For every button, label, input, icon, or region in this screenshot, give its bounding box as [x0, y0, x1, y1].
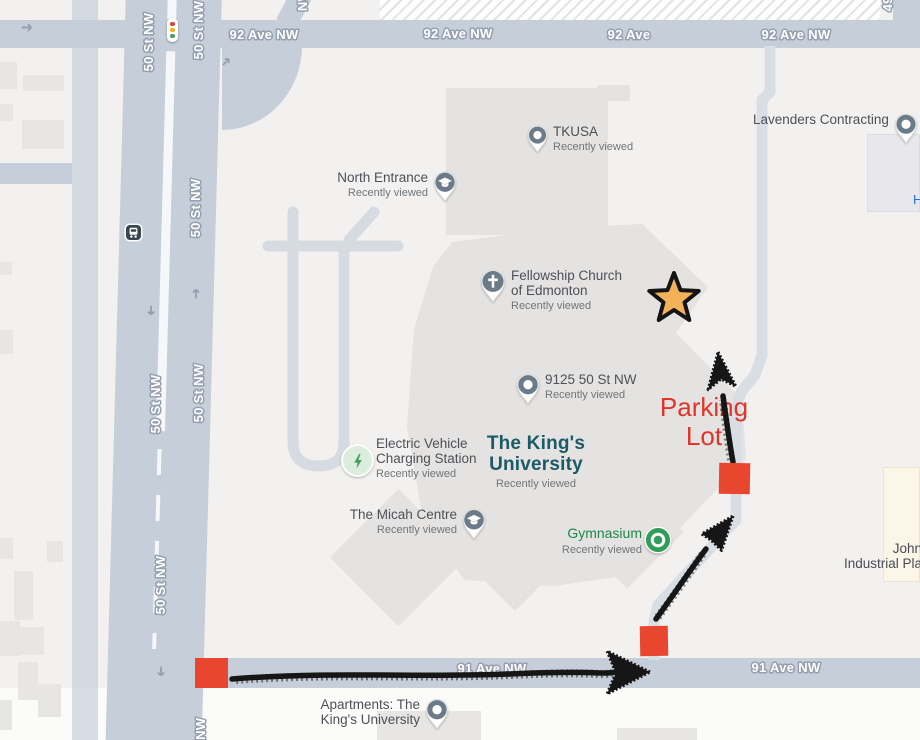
building-footprint — [18, 662, 38, 700]
building-footprint — [0, 104, 13, 121]
poi-name[interactable]: Lavenders Contracting — [753, 112, 889, 127]
traffic-direction-arrow — [143, 303, 159, 319]
route-arrowhead-diagonal — [702, 516, 733, 550]
poi-ev-charging-station[interactable]: Electric Vehicle Charging Station Recent… — [343, 436, 488, 480]
poi-status: Recently viewed — [553, 141, 633, 153]
poi-name[interactable]: Fellowship Church of Edmonton — [511, 268, 629, 298]
place-pin-icon[interactable] — [893, 112, 919, 144]
building-footprint — [0, 621, 20, 656]
poi-status: Recently viewed — [562, 544, 642, 556]
place-pin-icon[interactable] — [424, 697, 450, 730]
building-footprint — [597, 85, 630, 101]
building-footprint — [0, 62, 17, 89]
poi-status: Recently viewed — [545, 389, 637, 401]
traffic-light-icon — [167, 18, 178, 42]
gymnasium-dot-icon[interactable] — [646, 528, 670, 552]
poi-status: Recently viewed — [376, 468, 488, 480]
poi-name[interactable]: TKUSA — [553, 124, 633, 139]
poi-name[interactable]: The Micah Centre — [350, 507, 457, 522]
poi-name[interactable]: Electric Vehicle Charging Station — [376, 436, 488, 466]
place-pin-icon[interactable] — [515, 372, 541, 405]
traffic-direction-arrow — [19, 19, 36, 36]
poi-status: Recently viewed — [496, 478, 576, 490]
route-marker-square-mid — [640, 626, 669, 656]
poi-name-line1: John — [893, 541, 920, 556]
road-side-street — [0, 163, 72, 184]
traffic-direction-arrow — [188, 285, 204, 301]
school-pin-icon[interactable] — [432, 170, 458, 202]
traffic-direction-arrow — [153, 664, 169, 680]
campus-building-north — [446, 88, 608, 235]
building-footprint — [20, 627, 44, 655]
star-annotation — [649, 273, 698, 320]
poi-name[interactable]: 9125 50 St NW — [545, 372, 637, 387]
place-pin-icon[interactable] — [526, 124, 549, 153]
building-footprint — [0, 262, 12, 275]
building-footprint — [23, 75, 64, 91]
poi-status: Recently viewed — [348, 187, 428, 199]
poi-kings-university[interactable]: The King's University Recently viewed — [486, 433, 586, 490]
building-footprint — [22, 120, 64, 149]
school-pin-icon[interactable] — [461, 507, 487, 540]
restricted-area-hatching — [380, 0, 880, 22]
church-pin-icon[interactable] — [479, 268, 507, 303]
route-marker-square-start — [195, 658, 228, 688]
poi-name[interactable]: Apartments: The King's University — [300, 697, 420, 727]
poi-fellowship-church[interactable]: Fellowship Church of Edmonton Recently v… — [479, 268, 629, 312]
poi-micah-centre[interactable]: The Micah Centre Recently viewed — [342, 507, 487, 540]
poi-name[interactable]: The King's University — [486, 433, 586, 476]
poi-status: Recently viewed — [511, 300, 629, 312]
poi-lavenders-contracting[interactable]: Lavenders Contracting — [753, 112, 919, 144]
route-arrow-texture — [658, 552, 704, 617]
building-footprint — [14, 571, 33, 620]
building-footprint — [617, 728, 697, 740]
campus-loop-driveway — [268, 212, 398, 466]
poi-status: Recently viewed — [377, 524, 457, 536]
parking-lot-annotation: Parking Lot — [652, 393, 756, 450]
poi-john-industrial[interactable]: John Industrial Pla — [838, 541, 920, 572]
poi-name-line2: Industrial Pla — [844, 556, 920, 571]
poi-partial-blue-label[interactable]: H — [913, 192, 920, 207]
route-arrowhead-north — [708, 352, 736, 390]
road-alley — [72, 0, 98, 740]
poi-name[interactable]: North Entrance — [337, 170, 428, 185]
bus-stop-icon[interactable] — [126, 225, 141, 240]
building-footprint — [47, 541, 63, 562]
ev-charging-icon[interactable] — [343, 446, 372, 475]
road-50-st — [105, 0, 222, 740]
building-footprint — [0, 538, 13, 559]
building-footprint — [0, 700, 12, 730]
building-footprint — [38, 684, 61, 717]
map-canvas[interactable]: 92 Ave NW 92 Ave NW 92 Ave 92 Ave NW 50 … — [0, 0, 920, 740]
road-49-st-stub — [893, 0, 920, 24]
poi-apartments-kings[interactable]: Apartments: The King's University — [300, 697, 450, 730]
route-marker-square-end — [719, 463, 751, 495]
road-91-ave — [150, 658, 920, 688]
poi-9125-50-st[interactable]: 9125 50 St NW Recently viewed — [515, 372, 637, 405]
poi-north-entrance[interactable]: North Entrance Recently viewed — [325, 170, 458, 202]
poi-name[interactable]: Gymnasium — [567, 526, 642, 542]
route-arrow-diagonal — [656, 549, 706, 619]
building-footprint — [0, 330, 13, 354]
poi-gymnasium[interactable]: Gymnasium Recently viewed — [556, 526, 670, 556]
poi-tkusa[interactable]: TKUSA Recently viewed — [526, 124, 633, 153]
